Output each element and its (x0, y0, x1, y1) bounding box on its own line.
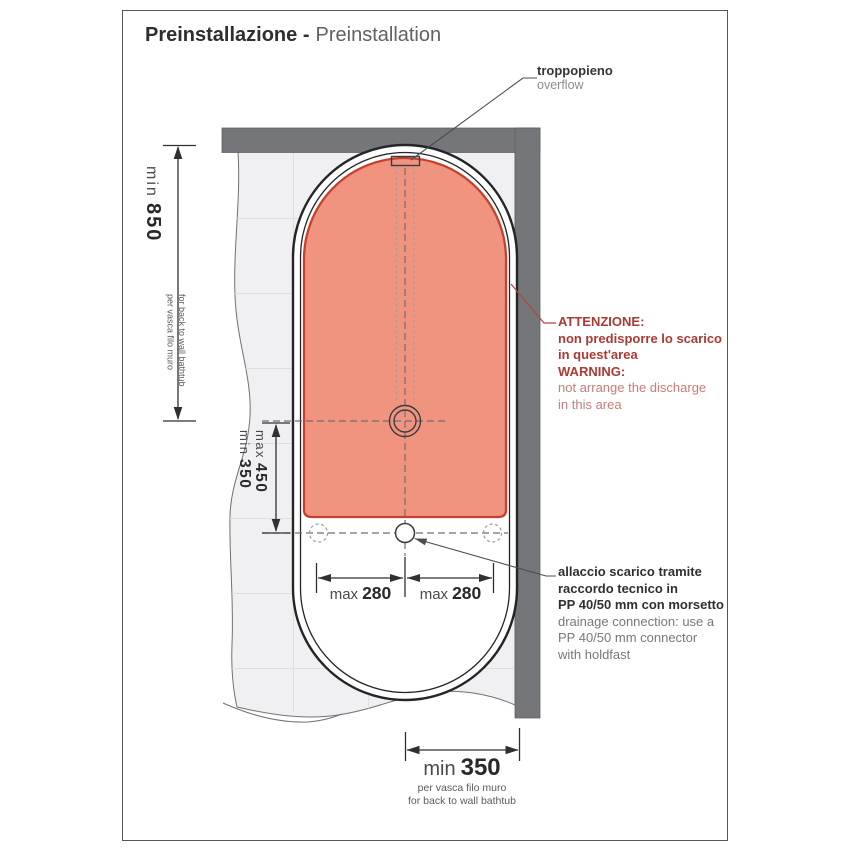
warning-title-en: WARNING: (558, 364, 733, 381)
overflow-label-it: troppopieno (537, 63, 613, 78)
dim-drain-zone-max: max450 (252, 430, 268, 535)
preinstall-diagram (0, 0, 850, 850)
dim-back-wall-note-it: per vasca filo muro (165, 166, 176, 446)
drain-conn-it-1: allaccio scarico tramite (558, 564, 743, 581)
dim-back-wall-note-en: for back to wall bathtub (177, 166, 188, 446)
drain-conn-en-1: drainage connection: use a (558, 614, 743, 631)
drain-conn-en-3: with holdfast (558, 647, 743, 664)
warning-body-en-2: in this area (558, 397, 733, 414)
dim-offset-right-label: max280 (406, 583, 495, 604)
dim-side-wall-value: min350 (377, 754, 547, 782)
dim-back-wall-value: min850 (140, 166, 164, 446)
title-english: Preinstallation (316, 24, 442, 46)
dim-drain-zone-label: min350 max450 (236, 430, 268, 535)
dim-side-wall-label: min350 per vasca filo muro for back to w… (377, 754, 547, 807)
page: Preinstallazione -Preinstallation troppo… (0, 0, 850, 850)
warning-body-it-1: non predisporre lo scarico (558, 331, 733, 348)
callout-overflow: troppopieno overflow (537, 63, 613, 93)
overflow-label-en: overflow (537, 78, 613, 93)
warning-title-it: ATTENZIONE: (558, 314, 733, 331)
warning-body-en-1: not arrange the discharge (558, 380, 733, 397)
dim-back-wall-label: min850 per vasca filo muro for back to w… (140, 166, 187, 446)
drain-conn-en-2: PP 40/50 mm connector (558, 630, 743, 647)
drain-conn-it-2: raccordo tecnico in (558, 581, 743, 598)
side-wall (515, 128, 540, 718)
dim-side-wall-note-en: for back to wall bathtub (377, 795, 547, 808)
dim-offset-left-label: max280 (316, 583, 405, 604)
callout-warning: ATTENZIONE: non predisporre lo scarico i… (558, 314, 733, 413)
drain-conn-it-3: PP 40/50 mm con morsetto (558, 597, 743, 614)
warning-body-it-2: in quest'area (558, 347, 733, 364)
drain-connection-point (396, 524, 415, 543)
dim-side-wall-note-it: per vasca filo muro (377, 782, 547, 795)
title-italian: Preinstallazione - (145, 24, 310, 46)
callout-drain-connection: allaccio scarico tramite raccordo tecnic… (558, 564, 743, 663)
dim-drain-zone-min: min350 (236, 430, 252, 535)
page-title: Preinstallazione -Preinstallation (145, 24, 441, 47)
